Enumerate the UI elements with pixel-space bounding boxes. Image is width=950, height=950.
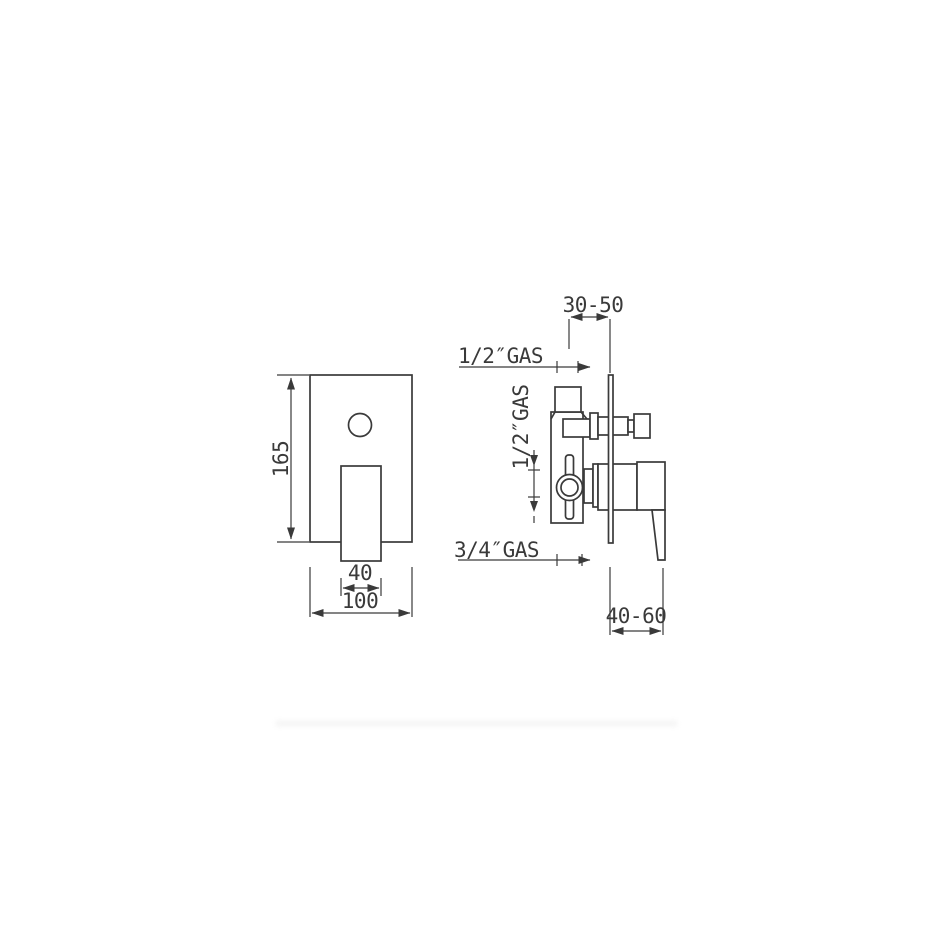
dim-label-40-60: 40-60 [599,605,673,627]
port-label-three-quarter-gas: 3/4″GAS [454,539,564,561]
dim-half-gas-side-arrow2 [530,501,538,512]
lever-handle-body-side [637,462,665,510]
dim-label-165: 165 [270,424,292,494]
outlet-flange [590,413,598,439]
dim-label-30-50: 30-50 [556,294,630,316]
outlet-end-block [634,414,650,438]
top-inlet-port [555,387,581,412]
dim-label-100: 100 [325,590,395,612]
diverter-hub-inner [561,479,578,496]
port-label-half-gas-side: 1/2″GAS [510,372,532,482]
wall-plate-line [609,375,614,543]
photo-shadow-band [275,720,678,727]
outlet-union [563,419,590,437]
outlet-neck [628,420,634,432]
diverter-knob-front [349,414,372,437]
dim-label-40: 40 [335,562,385,584]
lever-handle-front [341,466,381,561]
cartridge-step [584,469,593,503]
cartridge-body [598,464,637,510]
lever-handle-blade-side [652,510,665,560]
port-label-half-gas-top: 1/2″GAS [458,345,568,367]
technical-drawing-page: 165 40 100 30-50 1/2″GAS 1/2″GAS 3/4″GAS… [0,0,950,950]
mixer-drawing-linework [0,0,950,950]
